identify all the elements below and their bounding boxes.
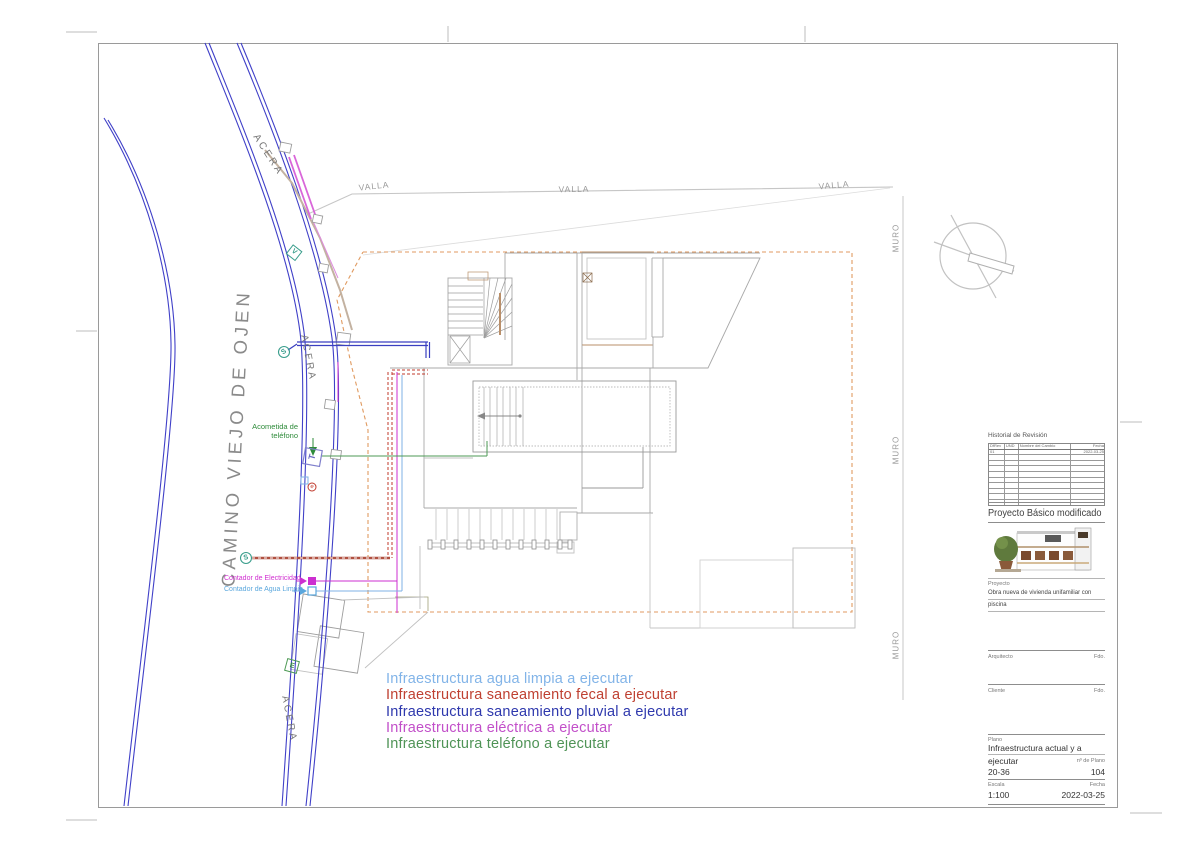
rev-col-header: Nombre del Cambio [1019, 444, 1072, 449]
sidewalk-detail [265, 142, 352, 460]
rev-col-header: Fecha [1071, 444, 1104, 449]
plano-title-line1: Infraestructura actual y a [988, 743, 1105, 753]
legend-item: Infraestructura teléfono a ejecutar [386, 736, 689, 752]
revision-history-title: Historial de Revisión [988, 432, 1105, 439]
expediente-value: 20-36 [988, 767, 1105, 777]
legend-item: Infraestructura saneamiento fecal a ejec… [386, 687, 689, 703]
garage-structures [290, 594, 428, 674]
project-description-line1: Obra nueva de vivienda unifamiliar con [988, 589, 1096, 596]
contador-agua-label: Contador de Agua Limpia [224, 586, 303, 593]
arquitecto-label: Arquitecto [988, 654, 1105, 660]
compass-icon [934, 215, 1014, 298]
muro-label-3: MURO [892, 631, 901, 659]
sewer-manhole-s2-icon: S [243, 554, 249, 562]
legend-item: Infraestructura saneamiento pluvial a ej… [386, 704, 689, 720]
contador-electricidad-label: Contador de Electricidad [224, 575, 301, 582]
drawing-sheet: CAMINO VIEJO DE OJEN ACERA ACERA ACERA V… [0, 0, 1200, 849]
utility-fecal [388, 370, 428, 558]
acometida-telefono-label: Acometida de teléfono [250, 423, 298, 440]
fecha-value: 2022-03-25 [1062, 790, 1105, 800]
arquitecto-fdo-label: Fdo. [1094, 654, 1105, 660]
muro-label-2: MURO [892, 436, 901, 464]
muro-label-1: MURO [892, 224, 901, 252]
rev-cell: 01 [989, 450, 1005, 455]
road-lines [104, 43, 338, 806]
parcel-boundary [337, 252, 852, 612]
pool [473, 381, 676, 488]
stair-detail [448, 272, 592, 363]
legend-item: Infraestructura eléctrica a ejecutar [386, 720, 689, 736]
legend-item: Infraestructura agua limpia a ejecutar [386, 671, 689, 687]
cliente-fdo-label: Fdo. [1094, 688, 1105, 694]
rev-cell [1019, 450, 1072, 455]
rev-col-header: UND [1005, 444, 1019, 449]
building-walls [390, 252, 855, 628]
escala-label: Escala [988, 782, 1105, 788]
project-title: Proyecto Básico modificado [988, 508, 1096, 519]
fecha-label: Fecha [1090, 782, 1105, 788]
project-description-line2: piscina [988, 601, 1096, 608]
terrace-pergola [395, 509, 572, 611]
proyecto-label: Proyecto [988, 581, 1105, 587]
rev-cell [1005, 450, 1019, 455]
rev-col-header: DfRev [989, 444, 1005, 449]
cliente-label: Cliente [988, 688, 1105, 694]
rev-cell: 2022-03-25 [1071, 450, 1104, 455]
project-photo [993, 527, 1110, 574]
revision-table: DfRev UND Nombre del Cambio Fecha 01 202… [988, 443, 1105, 506]
title-block: Historial de Revisión DfRev UND Nombre d… [988, 430, 1105, 808]
infrastructure-legend: Infraestructura agua limpia a ejecutar I… [386, 671, 689, 752]
num-plano-label: nº de Plano [1077, 758, 1105, 764]
num-plano-value: 104 [1091, 767, 1105, 777]
valla-label-2: VALLA [558, 184, 589, 195]
